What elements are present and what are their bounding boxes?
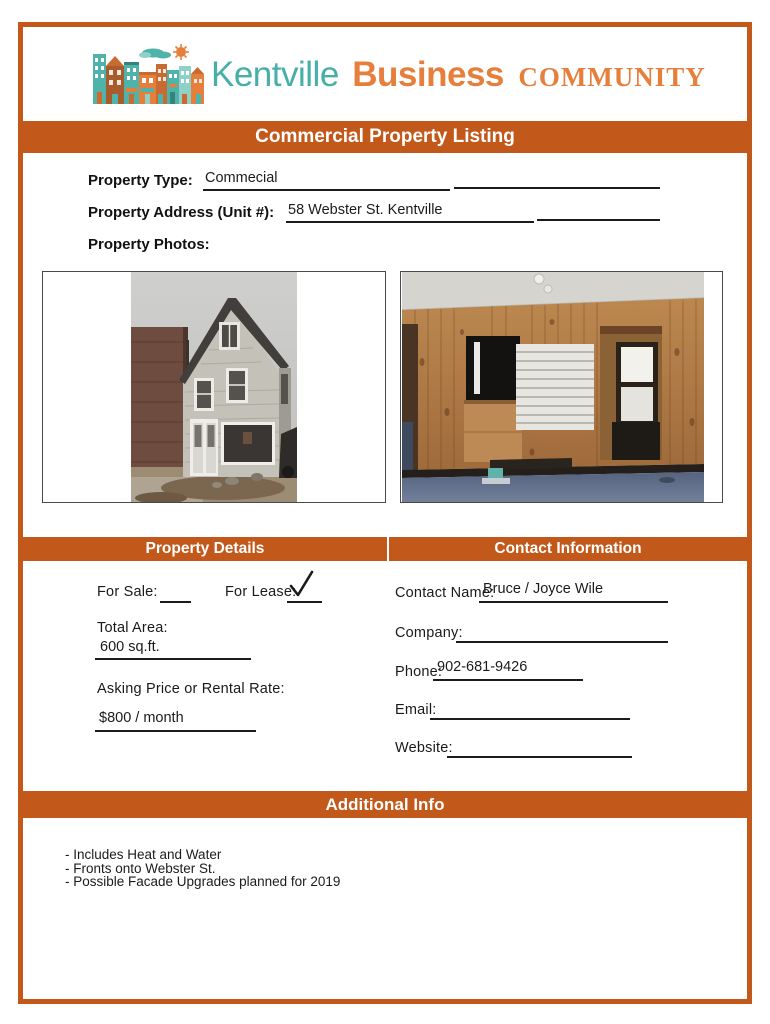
asking-price-underline[interactable] [95, 730, 256, 732]
property-type-value[interactable]: Commecial [205, 170, 278, 186]
asking-price-label: Asking Price or Rental Rate: [97, 681, 285, 697]
total-area-label: Total Area: [97, 620, 168, 636]
total-area-value[interactable]: 600 sq.ft. [100, 639, 160, 655]
contact-name-underline[interactable] [479, 601, 668, 603]
for-lease-label: For Lease: [225, 584, 296, 600]
cloud-icon [139, 49, 171, 59]
email-label: Email: [395, 702, 437, 718]
for-lease-checkmark[interactable] [287, 569, 315, 597]
company-underline[interactable] [456, 641, 668, 643]
contact-information-header: Contact Information [389, 537, 747, 561]
property-type-underline-2[interactable] [454, 187, 660, 189]
property-address-label: Property Address (Unit #): [88, 204, 274, 221]
commercial-property-listing-form: Kentville Business COMMUNITY Commercial … [0, 0, 770, 1024]
property-address-underline[interactable] [286, 221, 534, 223]
additional-info-line: - Fronts onto Webster St. [65, 862, 340, 876]
logo-text-community: COMMUNITY [518, 62, 705, 92]
property-details-header: Property Details [23, 537, 387, 561]
for-sale-label: For Sale: [97, 584, 158, 600]
townscape-logo-icon [93, 44, 207, 106]
additional-info-text: - Includes Heat and Water - Fronts onto … [65, 848, 340, 889]
phone-underline[interactable] [433, 679, 583, 681]
property-photos-label: Property Photos: [88, 236, 210, 253]
company-label: Company: [395, 625, 463, 641]
kentville-business-community-logo: Kentville Business COMMUNITY [93, 42, 706, 108]
for-lease-blank[interactable] [287, 601, 322, 603]
contact-name-value[interactable]: Bruce / Joyce Wile [483, 581, 603, 597]
exterior-house-photo [131, 272, 297, 502]
asking-price-value[interactable]: $800 / month [99, 710, 184, 726]
property-type-underline[interactable] [203, 189, 450, 191]
property-address-underline-2[interactable] [537, 219, 660, 221]
logo-text-kentville: Kentville [211, 55, 339, 94]
website-label: Website: [395, 740, 453, 756]
property-address-value[interactable]: 58 Webster St. Kentville [288, 202, 442, 218]
additional-info-header: Additional Info [23, 791, 747, 818]
photo-frame-right [400, 271, 723, 503]
photo-frame-left [42, 271, 386, 503]
additional-info-line: - Possible Facade Upgrades planned for 2… [65, 875, 340, 889]
for-sale-blank[interactable] [160, 601, 191, 603]
phone-value[interactable]: 902-681-9426 [437, 659, 527, 675]
logo-text-business: Business [352, 55, 504, 94]
total-area-underline[interactable] [95, 658, 251, 660]
phone-label: Phone: [395, 664, 442, 680]
contact-name-label: Contact Name: [395, 585, 494, 601]
title-banner: Commercial Property Listing [18, 121, 752, 153]
email-underline[interactable] [430, 718, 630, 720]
website-underline[interactable] [447, 756, 632, 758]
additional-info-line: - Includes Heat and Water [65, 848, 340, 862]
sun-icon [173, 44, 189, 60]
property-type-label: Property Type: [88, 172, 193, 189]
interior-wood-panel-photo [402, 272, 704, 502]
